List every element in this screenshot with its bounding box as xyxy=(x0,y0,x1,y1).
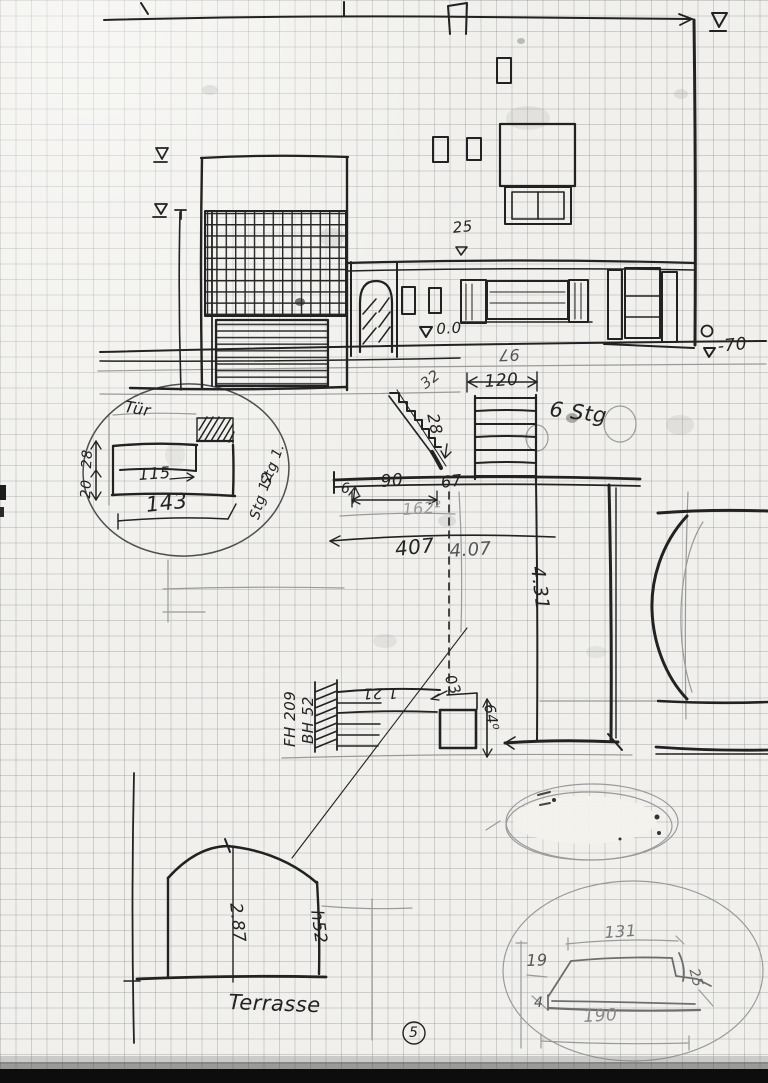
window xyxy=(429,288,441,313)
bench-dim-4-label: 4 xyxy=(534,996,543,1010)
dim-121-label: 1.21 xyxy=(362,685,398,701)
shutter xyxy=(662,272,677,342)
window-band xyxy=(487,281,568,319)
level-marker xyxy=(420,327,432,337)
dim-line-143 xyxy=(118,518,228,521)
ink-lines xyxy=(91,2,768,1044)
zero-ring xyxy=(702,326,713,337)
dim-120-label: 120 xyxy=(484,372,519,391)
room-right-wall xyxy=(609,485,611,740)
bay-curve xyxy=(652,516,687,699)
bench-dim-25-label: 25 xyxy=(686,967,704,989)
sketch-page: 25 0.0 -70 97 32 120 28 6 Stg 6 90 67 16… xyxy=(0,0,768,1083)
detail-dim-20-label: 20 xyxy=(79,479,94,499)
label-terrasse: Terrasse xyxy=(228,992,321,1016)
dim-287-label: 2.87 xyxy=(226,902,247,943)
dim-line-407 xyxy=(330,535,555,541)
shutter xyxy=(569,280,588,322)
level-marker xyxy=(153,204,167,217)
label-bh52: BH 52 xyxy=(301,696,316,744)
level-marker xyxy=(710,13,727,31)
bench-dim-190-label: 190 xyxy=(583,1007,618,1026)
window xyxy=(433,137,448,162)
dim-90-label: 90 xyxy=(380,472,404,491)
dim-h52-label: h52 xyxy=(307,909,329,945)
bench-dim-19-label: 19 xyxy=(526,952,548,969)
stair-run xyxy=(475,395,536,481)
level-marker xyxy=(154,148,168,162)
terrace-baseline xyxy=(137,976,326,979)
dim-4-07-label: 4.07 xyxy=(449,540,492,561)
window xyxy=(497,58,511,83)
terrace-arch xyxy=(168,846,317,883)
french-door xyxy=(625,268,660,338)
dim-28-label: 28 xyxy=(424,412,444,436)
garage-door xyxy=(216,320,328,386)
dim-162-label: 162² xyxy=(402,499,442,518)
dim-115-label: 115 xyxy=(138,465,171,483)
window xyxy=(402,287,415,314)
dim-6-label: 6 xyxy=(341,482,350,496)
stair-pencil-circle xyxy=(604,406,636,442)
level-minus70-label: -70 xyxy=(717,336,748,356)
shutter xyxy=(461,280,486,323)
dim-431-label: 4.31 xyxy=(527,565,551,611)
detail-dim-28-label: 28 xyxy=(80,449,95,469)
level-0-label: 0.0 xyxy=(436,321,462,337)
shutter xyxy=(608,270,622,339)
window-large xyxy=(500,124,575,186)
dim-64-label: 64⁰ xyxy=(481,703,500,732)
room-bottom-wall xyxy=(505,741,618,743)
bench-profile xyxy=(548,953,711,1011)
scan-edges xyxy=(0,485,768,1083)
level-marker xyxy=(456,247,467,255)
trellis-panel xyxy=(205,211,346,316)
bench-dim-131-label: 131 xyxy=(604,923,637,941)
level-marker xyxy=(704,348,715,357)
roof-line xyxy=(104,16,692,20)
erased-area xyxy=(513,796,657,844)
dim-143-label: 143 xyxy=(145,491,189,516)
window xyxy=(467,138,481,160)
label-tuer: Tür xyxy=(123,399,152,419)
bench-oval xyxy=(503,881,763,1061)
plan-door xyxy=(440,710,476,748)
dim-97-label: 97 xyxy=(498,346,520,363)
label-fh209: FH 209 xyxy=(283,691,298,747)
dim-67-label: 67 xyxy=(440,472,463,490)
page-number: 5 xyxy=(409,1026,418,1040)
sketch-linework xyxy=(0,0,768,1083)
dim-407-label: 407 xyxy=(394,535,436,559)
house-right-wall xyxy=(694,20,695,345)
chimney xyxy=(448,3,467,34)
dim-25-label: 25 xyxy=(452,219,474,236)
